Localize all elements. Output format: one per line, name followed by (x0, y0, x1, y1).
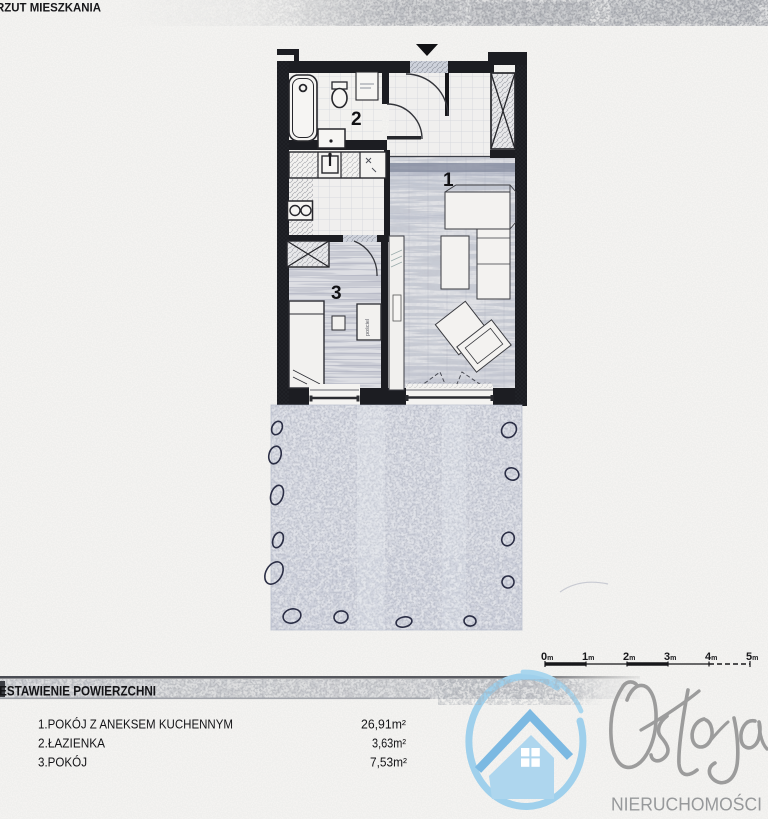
svg-text:pościel: pościel (365, 319, 371, 336)
svg-text:26,91m²: 26,91m² (361, 717, 407, 732)
svg-text:3: 3 (331, 283, 342, 304)
svg-text:7,53m²: 7,53m² (370, 755, 408, 770)
svg-text:ZESTAWIENIE POWIERZCHNI: ZESTAWIENIE POWIERZCHNI (0, 683, 156, 699)
svg-text:1: 1 (443, 170, 454, 191)
svg-text:3.POKÓJ: 3.POKÓJ (38, 755, 87, 770)
svg-text:NIERUCHOMOŚCI: NIERUCHOMOŚCI (611, 794, 762, 815)
svg-text:2: 2 (351, 109, 362, 130)
svg-text:RZUT MIESZKANIA: RZUT MIESZKANIA (0, 3, 101, 15)
svg-text:1.POKÓJ Z ANEKSEM KUCHENNYM: 1.POKÓJ Z ANEKSEM KUCHENNYM (38, 717, 233, 732)
svg-text:3,63m²: 3,63m² (372, 736, 407, 751)
svg-text:2.ŁAZIENKA: 2.ŁAZIENKA (38, 736, 105, 751)
